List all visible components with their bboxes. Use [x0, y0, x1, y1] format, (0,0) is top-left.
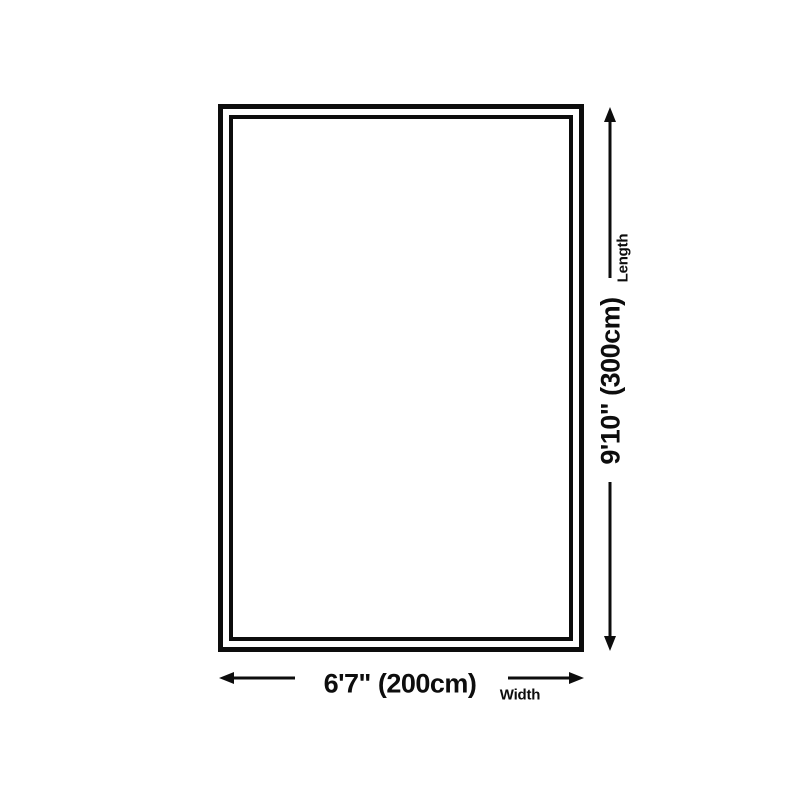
width-label: Width — [500, 687, 541, 704]
arrowhead-down-icon — [604, 636, 616, 651]
arrowhead-right-icon — [569, 672, 584, 684]
width-value: 6'7" (200cm) — [324, 669, 477, 700]
rug-size-diagram: 9'10" (300cm) Length 6'7" (200cm) Width — [0, 0, 800, 800]
arrowhead-up-icon — [604, 107, 616, 122]
length-label: Length — [615, 234, 632, 283]
length-value: 9'10" (300cm) — [596, 297, 627, 464]
arrowhead-left-icon — [219, 672, 234, 684]
